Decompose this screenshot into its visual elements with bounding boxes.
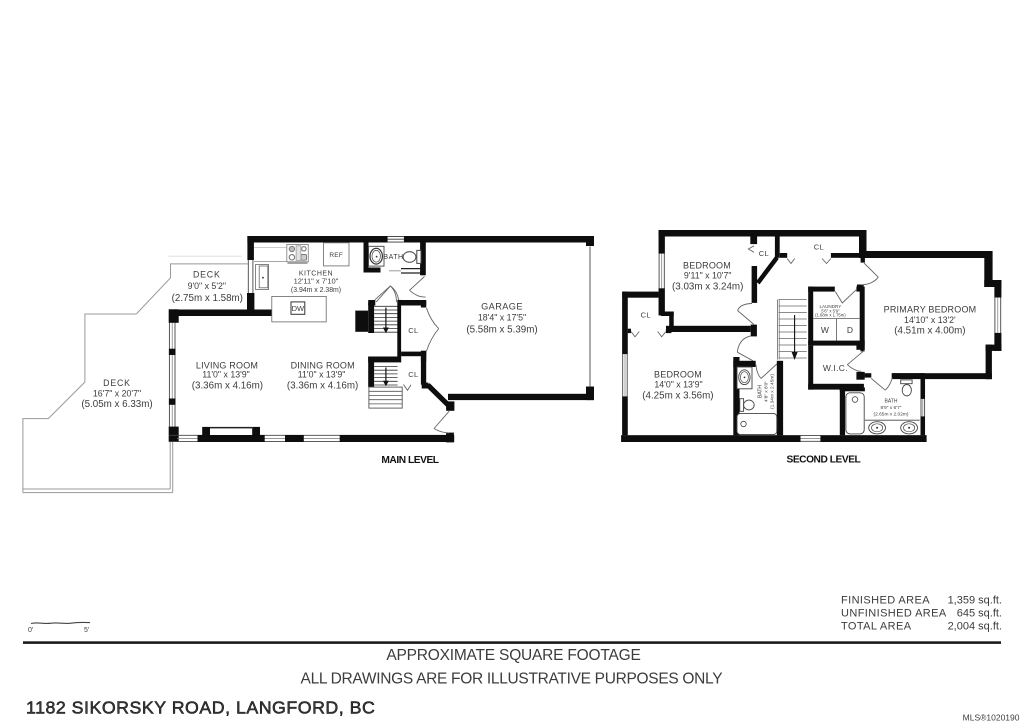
svg-text:MAIN LEVEL: MAIN LEVEL xyxy=(381,455,438,466)
svg-text:0': 0' xyxy=(28,627,33,634)
svg-text:11'0" x 13'9": 11'0" x 13'9" xyxy=(298,369,346,379)
svg-text:(4.25m x 3.56m): (4.25m x 3.56m) xyxy=(642,390,713,401)
svg-text:16'7" x 20'7": 16'7" x 20'7" xyxy=(93,389,141,399)
svg-text:BEDROOM: BEDROOM xyxy=(683,261,731,271)
svg-text:(2.75m x 1.58m): (2.75m x 1.58m) xyxy=(172,293,243,304)
svg-text:11'0" x 13'9": 11'0" x 13'9" xyxy=(202,369,250,379)
svg-text:PRIMARY BEDROOM: PRIMARY BEDROOM xyxy=(884,305,977,315)
svg-text:GARAGE: GARAGE xyxy=(481,302,523,312)
svg-text:CL: CL xyxy=(814,242,824,251)
svg-text:14'10" x 13'2': 14'10" x 13'2' xyxy=(904,315,956,325)
svg-text:TOTAL AREA: TOTAL AREA xyxy=(841,621,912,633)
svg-text:CL: CL xyxy=(408,370,418,379)
svg-text:CL: CL xyxy=(641,310,651,319)
svg-text:BATH: BATH xyxy=(383,254,403,261)
svg-text:4'8" x 8'0": 4'8" x 8'0" xyxy=(764,381,770,402)
svg-text:9'0" x 5'2": 9'0" x 5'2" xyxy=(188,281,226,291)
svg-text:ALL DRAWINGS ARE FOR ILLUSTRAT: ALL DRAWINGS ARE FOR ILLUSTRATIVE PURPOS… xyxy=(301,671,723,688)
svg-text:(3.03m x 3.24m): (3.03m x 3.24m) xyxy=(672,282,743,293)
svg-text:(5.05m x 6.33m): (5.05m x 6.33m) xyxy=(81,399,152,410)
svg-text:9'11" x 10'7": 9'11" x 10'7" xyxy=(684,271,732,281)
svg-text:(1.68m x 1.75m): (1.68m x 1.75m) xyxy=(815,313,846,318)
svg-text:APPROXIMATE SQUARE FOOTAGE: APPROXIMATE SQUARE FOOTAGE xyxy=(386,647,640,664)
svg-text:DECK: DECK xyxy=(193,269,221,279)
svg-text:W.I.C.: W.I.C. xyxy=(823,363,848,373)
svg-text:DECK: DECK xyxy=(103,378,131,388)
svg-text:UNFINISHED AREA: UNFINISHED AREA xyxy=(841,608,947,620)
svg-text:(5.58m x 5.39m): (5.58m x 5.39m) xyxy=(466,325,537,336)
svg-text:(1.34m x 2.45m): (1.34m x 2.45m) xyxy=(770,374,776,409)
svg-text:BATH: BATH xyxy=(758,385,764,398)
svg-text:5': 5' xyxy=(84,627,89,634)
svg-text:645 sq.ft.: 645 sq.ft. xyxy=(957,608,1002,620)
svg-text:2,004 sq.ft.: 2,004 sq.ft. xyxy=(948,621,1002,633)
svg-text:DW: DW xyxy=(292,304,305,313)
svg-text:(3.36m x 4.16m): (3.36m x 4.16m) xyxy=(192,380,263,391)
svg-text:1182 SIKORSKY ROAD, LANGFORD,: 1182 SIKORSKY ROAD, LANGFORD, BC xyxy=(26,697,375,717)
svg-text:1,359 sq.ft.: 1,359 sq.ft. xyxy=(948,595,1002,607)
svg-text:18'4" x 17'5": 18'4" x 17'5" xyxy=(478,313,526,323)
svg-text:CL: CL xyxy=(759,249,769,258)
svg-text:FINISHED AREA: FINISHED AREA xyxy=(841,595,930,607)
svg-text:BEDROOM: BEDROOM xyxy=(654,369,702,379)
svg-text:D: D xyxy=(847,325,853,335)
svg-text:8'9" x 6'7": 8'9" x 6'7" xyxy=(881,405,902,411)
svg-text:(2.65m x 2.02m): (2.65m x 2.02m) xyxy=(874,411,909,417)
svg-text:(4.51m x 4.00m): (4.51m x 4.00m) xyxy=(894,326,965,337)
svg-text:CL: CL xyxy=(408,326,418,335)
svg-text:W: W xyxy=(821,325,829,335)
svg-text:BATH: BATH xyxy=(885,399,898,405)
svg-text:REF: REF xyxy=(329,252,343,259)
svg-text:SECOND LEVEL: SECOND LEVEL xyxy=(786,455,860,466)
svg-text:14'0" x 13'9": 14'0" x 13'9" xyxy=(654,379,702,389)
svg-text:12'11" x 7'10": 12'11" x 7'10" xyxy=(294,277,339,286)
svg-text:(3.94m x 2.38m): (3.94m x 2.38m) xyxy=(291,287,341,294)
svg-text:MLS®1020190: MLS®1020190 xyxy=(963,713,1020,723)
svg-text:(3.36m x 4.16m): (3.36m x 4.16m) xyxy=(287,380,358,391)
